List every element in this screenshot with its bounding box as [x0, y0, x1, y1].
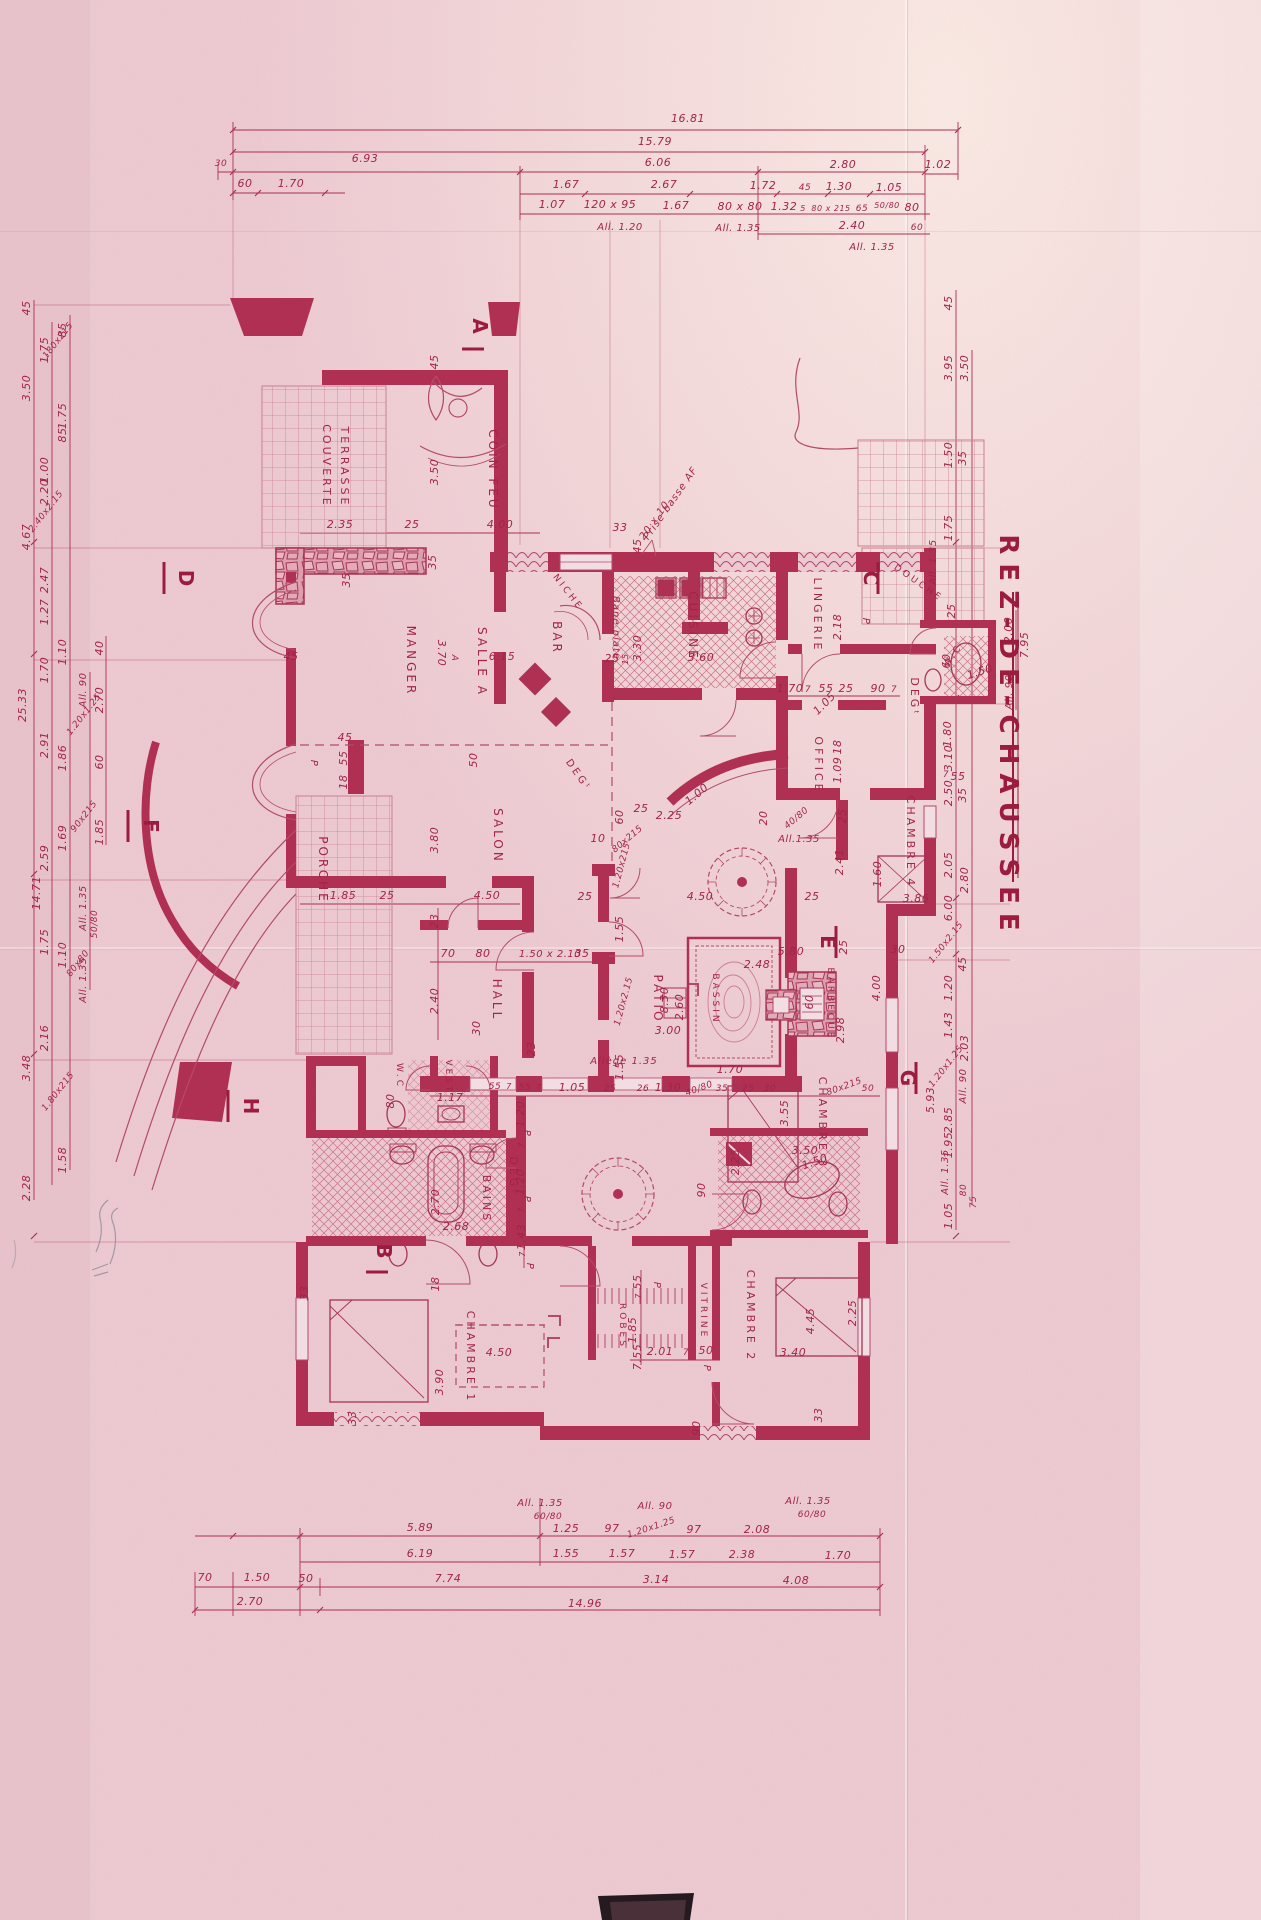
dim-text: 1.67	[663, 199, 690, 212]
dim-text: 90	[695, 1183, 708, 1198]
dim-text: 1.10	[56, 942, 69, 969]
dim-text: 25	[836, 809, 849, 824]
dim-text: 1.75	[38, 929, 51, 956]
dim-text: P	[308, 760, 319, 767]
dim-text: 45	[942, 296, 955, 311]
section-marker: F	[139, 819, 163, 835]
dim-text: 25	[839, 682, 854, 695]
dim-text: 1.27	[38, 599, 51, 626]
dim-text: 1.30	[826, 180, 853, 193]
window-slot	[508, 552, 548, 572]
dim-text: 20	[757, 811, 770, 826]
dim-text: 30	[215, 159, 227, 169]
dim-text: 1.07	[539, 198, 566, 211]
dim-text: 3.90	[433, 1369, 446, 1396]
dim-text: 60	[803, 995, 816, 1010]
section-marker: C	[859, 571, 883, 588]
dim-text: 23	[428, 914, 441, 929]
dim-text: 1.32	[771, 200, 798, 213]
room-label: PORCHE	[316, 836, 330, 903]
dim-text: 1.70	[825, 1549, 852, 1562]
dim-text: 2.25	[729, 1149, 742, 1176]
blueprint-sheet: 16.8115.791.02306.936.062.80601.701.672.…	[0, 0, 1261, 1920]
dim-text: 2.70	[237, 1595, 264, 1608]
dim-text: All. 1.35	[940, 1149, 951, 1196]
dim-text: 25	[945, 604, 958, 619]
dim-text: 1.05	[559, 1081, 586, 1094]
dim-text: 7	[517, 1207, 526, 1213]
dim-text: 4.00	[870, 975, 883, 1002]
dim-text: 1.20	[514, 1101, 527, 1128]
dim-text: 4.08	[783, 1574, 810, 1587]
dim-text: 33	[346, 1411, 359, 1426]
dim-text: 3.48	[20, 1055, 33, 1082]
dim-text: P	[524, 1263, 535, 1270]
dim-text: All. 1.35	[516, 1498, 563, 1509]
dim-text: 1.55	[613, 916, 626, 943]
dim-text: All.1.35	[777, 834, 820, 845]
dim-text: 16.81	[671, 112, 705, 125]
dim-text: 23	[525, 1042, 538, 1057]
room-label: COUVERTE	[320, 424, 333, 507]
dim-text: 18	[337, 775, 350, 790]
dim-text: 35	[956, 451, 969, 466]
dim-text: 30	[470, 1021, 483, 1036]
dim-text: 2.38	[729, 1548, 756, 1561]
dim-text: 1.69	[56, 825, 69, 852]
room-label: HALL	[490, 979, 504, 1022]
dim-text: 5.80	[778, 945, 805, 958]
dim-text: 1.20	[514, 1169, 527, 1196]
dim-text: 97	[687, 1523, 702, 1536]
dim-text: 1.05	[942, 1203, 955, 1230]
dim-text: 4.50	[474, 889, 501, 902]
room-label: BAR	[550, 621, 564, 655]
dim-text: 5.89	[407, 1521, 434, 1534]
dim-text: 2.25	[846, 1300, 859, 1327]
dim-text: All. 90	[637, 1501, 673, 1512]
dim-text: 25	[634, 802, 649, 815]
dim-text: 6.15	[489, 650, 516, 663]
dim-text: 4.00	[487, 518, 514, 531]
dim-text: 2.85	[942, 1107, 955, 1134]
dim-text: 55	[489, 1082, 501, 1092]
dim-text: 90	[871, 682, 886, 695]
dim-text: 4.50	[687, 890, 714, 903]
dim-text: 60/80	[798, 1510, 826, 1520]
dim-text: 80	[384, 1094, 397, 1109]
dim-text: All. 1.35	[78, 957, 89, 1004]
dim-text: 25	[605, 652, 620, 665]
room-label: CHAMBRE 1	[464, 1311, 477, 1404]
dim-text: 15.79	[638, 135, 672, 148]
dim-text: 75	[969, 1196, 979, 1208]
dim-text: P	[651, 1282, 662, 1289]
dim-text: 6.19	[407, 1547, 434, 1560]
dim-text: 45	[284, 650, 299, 663]
dim-text: 80	[905, 201, 920, 214]
dim-text: 26	[637, 1084, 649, 1094]
dim-text: 2.25	[656, 809, 683, 822]
dim-text: 2.80	[958, 867, 971, 894]
dim-text: 50	[699, 1344, 714, 1357]
dim-text: 80	[959, 1184, 969, 1196]
dim-text: 1.50 x 2.10	[519, 949, 581, 960]
dim-text: 55	[951, 770, 966, 783]
dim-text: All. 1.35	[848, 242, 895, 253]
dim-text: 1.17	[437, 1091, 464, 1104]
dim-text: A	[449, 654, 459, 662]
dim-text: 1.55	[553, 1547, 580, 1560]
dim-text: 2.35	[327, 518, 354, 531]
dim-text: 1.70	[777, 682, 804, 695]
dim-text: 6.06	[645, 156, 672, 169]
section-marker: G	[896, 1070, 920, 1088]
dim-text: 1.60	[871, 861, 884, 888]
dim-text: 50/80	[874, 201, 900, 210]
section-marker: H	[239, 1098, 263, 1117]
dim-text: 2.28	[20, 1175, 33, 1202]
dim-text: 3.55	[778, 1100, 791, 1127]
dim-text: 10	[591, 832, 606, 845]
dim-text: 60	[613, 810, 626, 825]
dim-text: 1.70	[278, 177, 305, 190]
dim-text: 7.74	[435, 1572, 462, 1585]
dim-text: 3.30	[631, 635, 644, 662]
dim-text: 2.40	[839, 219, 866, 232]
dim-text: All. 1.35	[78, 885, 89, 932]
dim-text: 25	[380, 889, 395, 902]
porche-grid	[296, 796, 392, 1054]
dim-text: 1.43	[515, 1224, 528, 1251]
dim-text: 50	[299, 1572, 314, 1585]
dim-text: 2.68	[443, 1220, 470, 1233]
dim-text: P	[521, 1130, 532, 1137]
dim-text: 7	[536, 1083, 542, 1092]
dim-text: 7	[506, 1082, 512, 1091]
plan-title: REZ-DE-CHAUSSEE	[993, 534, 1023, 939]
dim-text: 1.50	[244, 1571, 271, 1584]
room-label: MANGER	[404, 626, 418, 697]
dim-text: 2.01	[647, 1345, 674, 1358]
room-label: COIN FEU	[486, 429, 500, 510]
dim-text: 1.58	[56, 1147, 69, 1174]
dim-text: 1.02	[925, 158, 952, 171]
dim-text: 120 x 95	[584, 198, 637, 211]
dim-text: 80 x 215	[811, 204, 850, 213]
section-marker: B	[372, 1243, 396, 1260]
dim-text: 1.20	[942, 975, 955, 1002]
dim-text: 35	[716, 1084, 728, 1094]
dim-text: 2.67	[651, 178, 678, 191]
dim-text: All. 1.35	[784, 1496, 831, 1507]
dim-text: 14.71	[30, 876, 43, 910]
room-label: OFFICE	[812, 736, 825, 793]
dim-text: 7	[683, 1348, 689, 1358]
dim-text: 55	[519, 1083, 531, 1093]
dim-text: 2.40	[428, 988, 441, 1015]
dim-text: 1.67	[553, 178, 580, 191]
dim-text: 7	[943, 770, 949, 780]
dim-text: 1.75	[56, 403, 69, 430]
dim-text: 3.50	[428, 459, 441, 486]
room-label: CHAMBRE 4	[904, 796, 917, 889]
dim-text: 70	[198, 1571, 213, 1584]
dim-text: 3.86	[903, 892, 930, 905]
dim-text: 1.86	[56, 745, 69, 772]
dim-text: 1.57	[669, 1548, 696, 1561]
room-label: VEST	[443, 1059, 453, 1094]
dim-text: 50	[862, 1084, 874, 1094]
dim-text: 55	[631, 1275, 644, 1290]
dim-text: 50/80	[90, 910, 100, 938]
dim-text: 1.85	[330, 889, 357, 902]
dim-text: 33	[298, 1286, 311, 1301]
dim-text: 25.33	[16, 688, 29, 722]
dim-text: 1.09	[831, 757, 844, 784]
room-label: VITRINE	[698, 1283, 708, 1340]
dim-text: 4.50	[486, 1346, 513, 1359]
dim-text: 2.60	[673, 994, 686, 1021]
dim-text: 2.59	[38, 845, 51, 872]
dim-text: 2.70	[429, 1189, 442, 1216]
dim-text: 25	[837, 940, 850, 955]
room-label: BAINS	[480, 1175, 493, 1224]
dim-text: 1.30	[655, 1081, 682, 1094]
dim-text: 1.70	[38, 657, 51, 684]
dim-text: P	[521, 1196, 532, 1203]
dim-text: 45	[428, 355, 441, 370]
room-label: SALON	[491, 808, 505, 864]
dim-text: 2.47	[38, 567, 51, 594]
dim-text: 85	[56, 428, 69, 443]
dim-text: 30	[764, 1084, 776, 1094]
section-marker: D	[174, 570, 198, 589]
dim-text: 35	[575, 947, 590, 960]
sheet-edge-tabs	[598, 1893, 694, 1920]
dim-text: 5	[800, 204, 806, 213]
room-label: LINGERIE	[811, 578, 824, 653]
dim-text: 3.70	[435, 640, 448, 667]
annotation: Bane plate	[610, 596, 621, 660]
dim-text: 2.41	[833, 849, 846, 876]
dim-text: P	[701, 1365, 712, 1372]
dim-text: 1.80	[941, 721, 954, 748]
dim-text: 55	[337, 751, 350, 766]
bains-floor	[312, 1138, 506, 1236]
dim-text: 3.14	[643, 1573, 670, 1586]
dim-text: 25	[805, 890, 820, 903]
dim-text: 3.50	[958, 355, 971, 382]
dim-text: 50	[467, 753, 480, 768]
dim-text: 1.25	[553, 1522, 580, 1535]
dim-text: 4.45	[804, 1308, 817, 1335]
dim-text: 3.95	[942, 355, 955, 382]
dim-text: 1.70	[717, 1063, 744, 1076]
room-label: CHAMBRE 2	[744, 1270, 757, 1363]
dim-text: 7	[634, 1293, 643, 1299]
dim-text: All. 1.35	[714, 223, 761, 234]
dim-text: 25	[578, 890, 593, 903]
dim-text: 45	[338, 731, 353, 744]
dim-text: 45	[631, 539, 644, 554]
dim-text: 2.16	[38, 1025, 51, 1052]
dim-text: 60	[93, 755, 106, 770]
dim-text: 25	[604, 1084, 616, 1094]
dim-text: 2.48	[744, 958, 771, 971]
dim-text: 90	[690, 1421, 703, 1436]
dim-text: 25	[405, 518, 420, 531]
dim-text: 18	[831, 740, 844, 755]
dim-text: 60	[940, 654, 953, 669]
dim-text: 3.10	[942, 745, 955, 772]
room-label: W.C	[394, 1063, 404, 1089]
dim-text: 3.80	[428, 827, 441, 854]
dim-text: 2.08	[744, 1523, 771, 1536]
dim-text: 5.93	[924, 1087, 937, 1114]
dim-text: 45	[799, 183, 811, 193]
dim-text: 2.50	[942, 780, 955, 807]
dim-text: 1.50	[942, 442, 955, 469]
dim-text: 3.00	[655, 1024, 682, 1037]
room-label: SALLE A	[475, 627, 489, 697]
dim-text: 1.57	[609, 1547, 636, 1560]
dim-text: 80	[476, 947, 491, 960]
dim-text: 35	[956, 788, 969, 803]
dim-text: 97	[605, 1522, 620, 1535]
dim-text: 3.50	[20, 375, 33, 402]
dim-text: 2.98	[834, 1017, 847, 1044]
dim-text: 60/80	[534, 1512, 562, 1522]
dim-text: 25	[742, 1084, 754, 1094]
dim-text: 14.96	[568, 1597, 602, 1610]
dim-text: 3.40	[780, 1346, 807, 1359]
dim-text: 60	[238, 177, 253, 190]
dim-text: 45	[20, 301, 33, 316]
dim-text: 35	[426, 555, 439, 570]
dim-text: 2.70	[93, 687, 106, 714]
dim-text: 7	[891, 685, 897, 695]
dim-text: All. 90	[958, 1069, 969, 1105]
dim-text: 70	[441, 947, 456, 960]
dim-text: 1.75	[942, 515, 955, 542]
dim-text: 1.43	[942, 1012, 955, 1039]
dim-text: 7	[518, 1251, 527, 1257]
dim-text: 65	[856, 204, 868, 214]
dim-text: 80 x 80	[718, 200, 763, 213]
dim-text: 18	[429, 1277, 442, 1292]
dim-text: 6.00	[942, 895, 955, 922]
dim-text: 60	[911, 223, 923, 233]
dim-text: 2.05	[942, 852, 955, 879]
room-label: BASSIN	[710, 973, 720, 1024]
room-label: DEGᵗ	[908, 677, 921, 716]
floor-plan-drawing: 16.8115.791.02306.936.062.80601.701.672.…	[0, 0, 1261, 1920]
dim-text: 1.05	[876, 181, 903, 194]
dim-text: 15	[621, 653, 630, 664]
dim-text: All. 1.35	[928, 539, 939, 586]
room-label: TERRASSE	[338, 426, 351, 508]
dim-text: P	[860, 618, 871, 625]
paper-background	[0, 0, 1261, 1920]
dim-text: All. 1.20	[596, 222, 643, 233]
dim-text: 33	[812, 1408, 825, 1423]
dim-text: 1.55	[613, 1054, 626, 1081]
dim-text: 35	[340, 573, 353, 588]
dim-text: 2.91	[38, 732, 51, 759]
dim-text: 1.10	[56, 639, 69, 666]
dim-text: 40	[93, 641, 106, 656]
dim-text: 45	[956, 957, 969, 972]
dim-text: 7.55	[631, 1344, 644, 1371]
dim-text: 1.85	[93, 819, 106, 846]
dim-text: 7	[517, 1142, 526, 1148]
dim-text: 1.72	[750, 179, 777, 192]
dim-text: 7	[805, 685, 811, 695]
dim-text: 8.30	[658, 987, 671, 1014]
dim-text: 2.80	[830, 158, 857, 171]
dim-text: 6.93	[352, 152, 379, 165]
dim-text: 1.85	[626, 1317, 639, 1344]
section-marker: A	[468, 318, 492, 335]
dim-text: 3.60	[688, 651, 715, 664]
dim-text: 2.18	[831, 614, 844, 641]
dim-text: 33	[613, 521, 628, 534]
dim-text: 30	[891, 943, 906, 956]
